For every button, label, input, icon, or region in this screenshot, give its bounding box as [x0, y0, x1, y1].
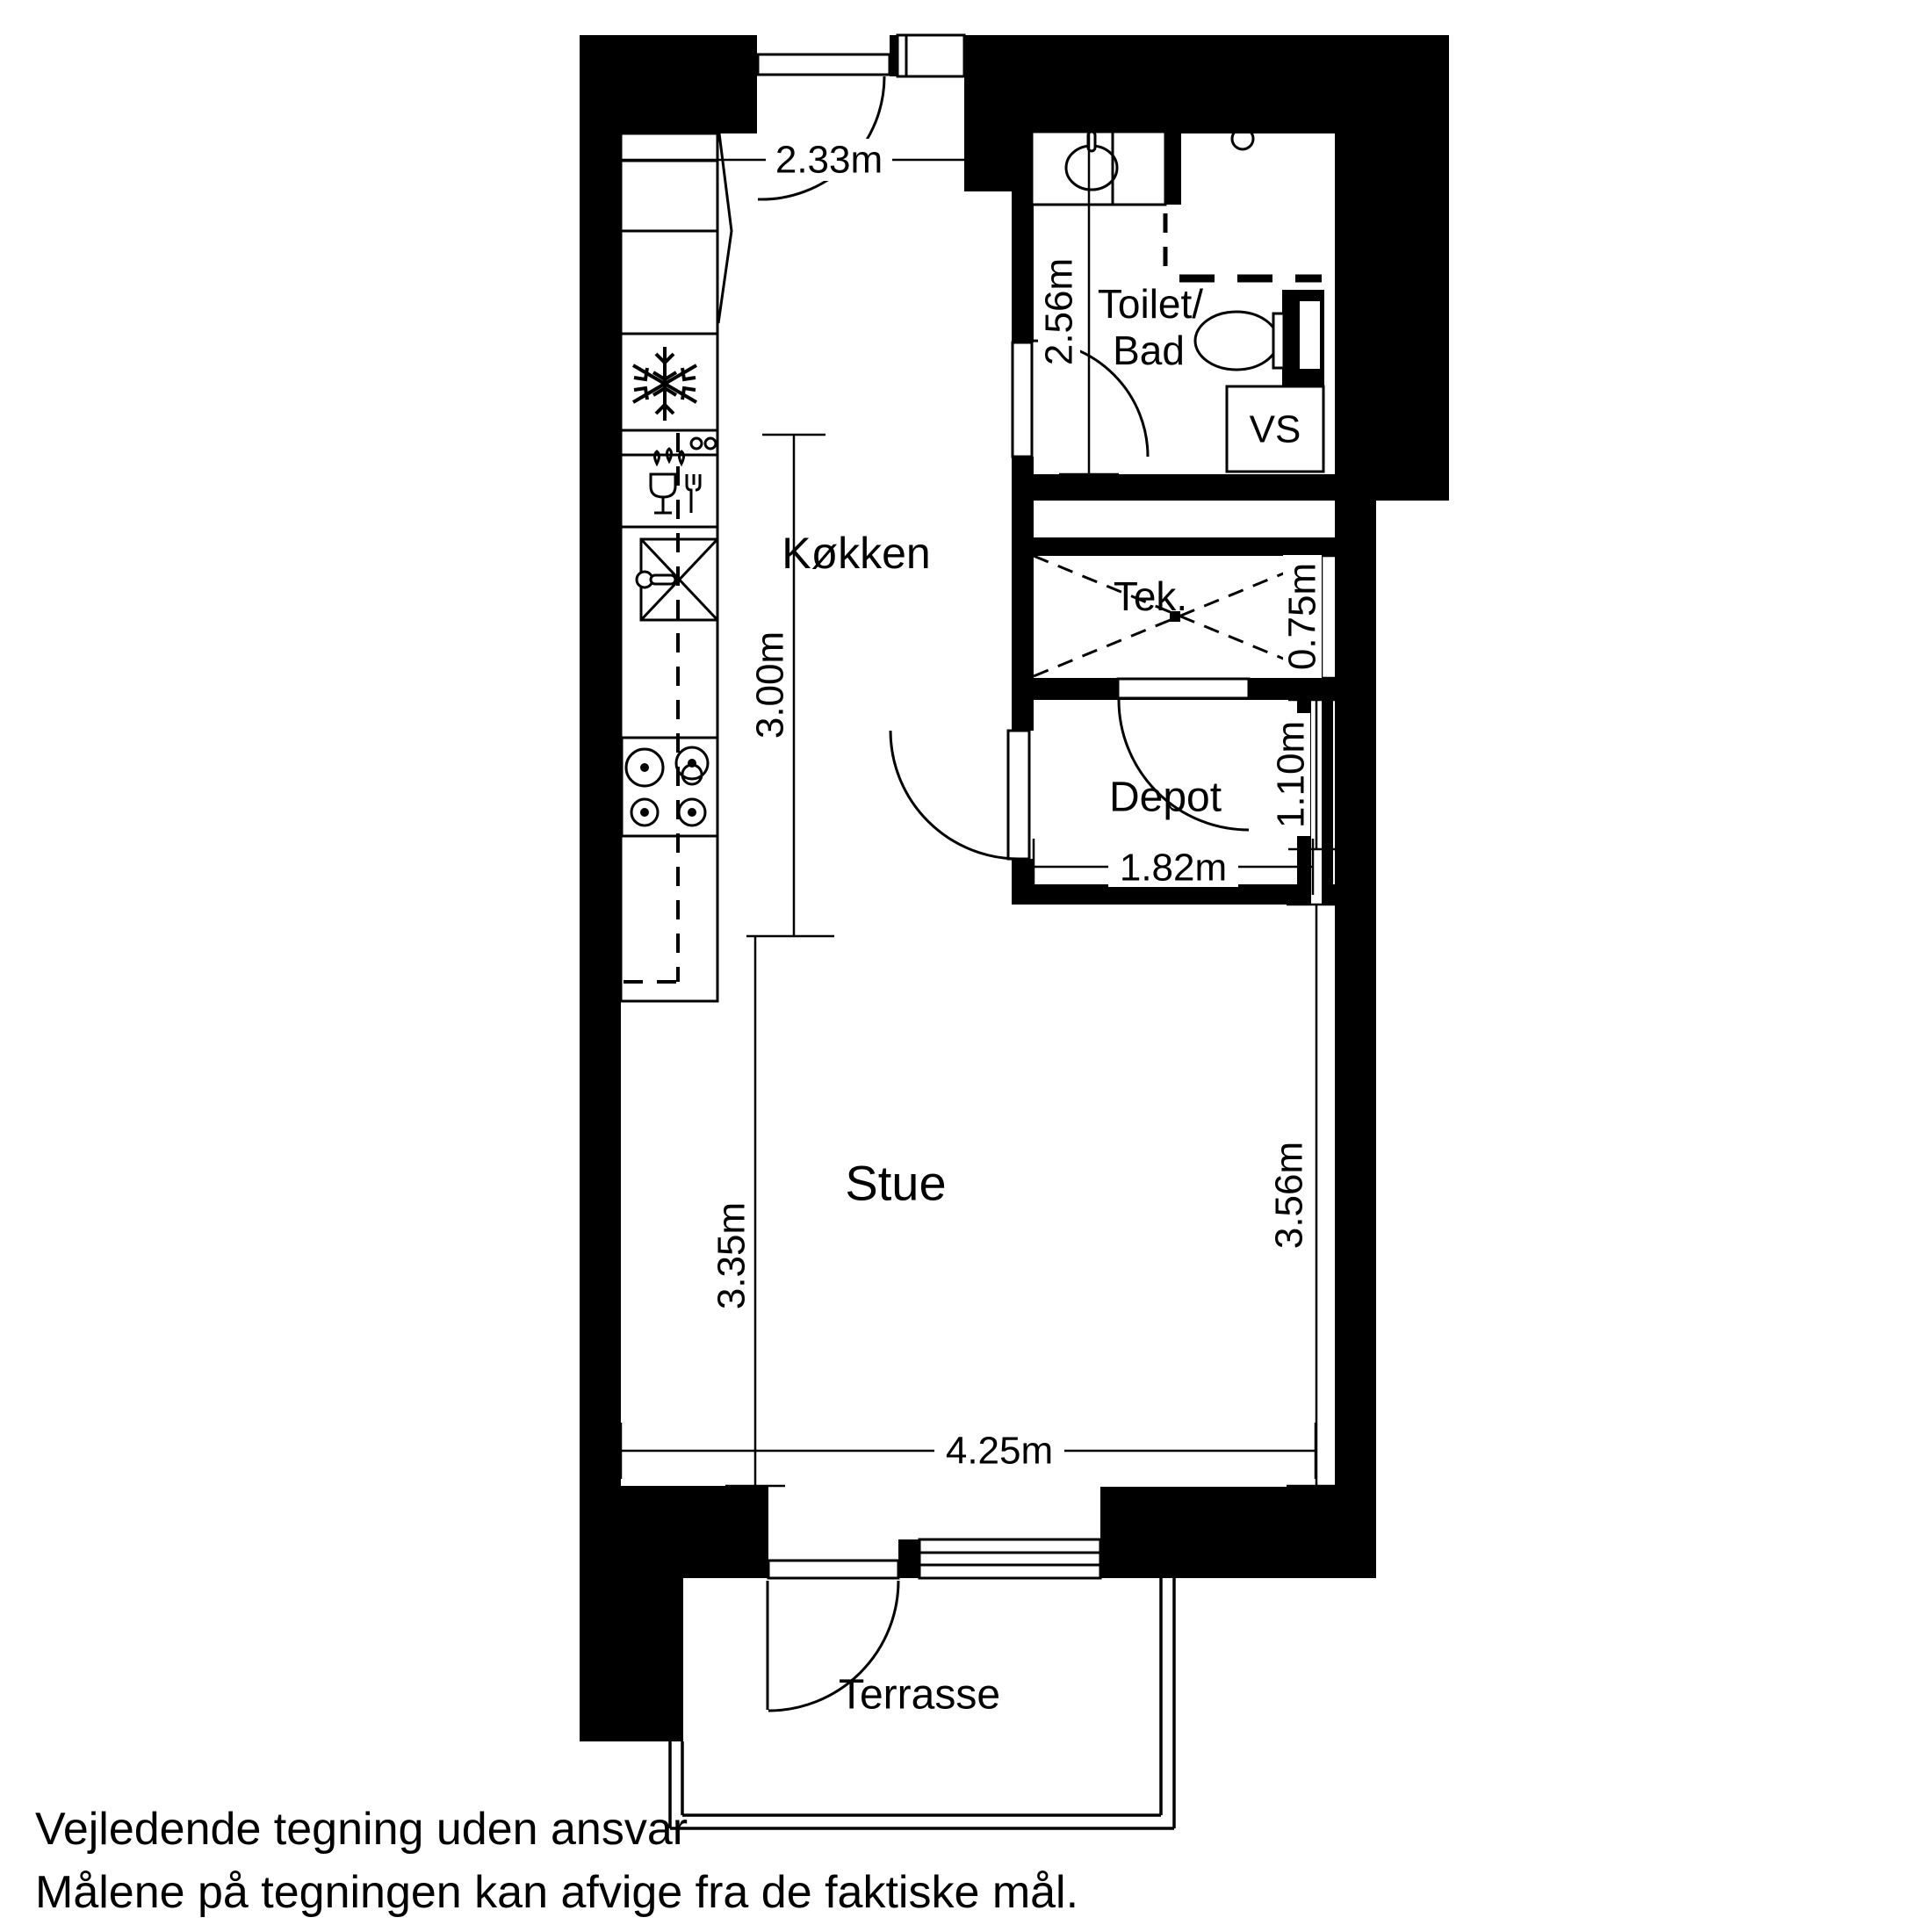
- footer-disclaimer: Vejledende tegning uden ansvar Målene på…: [35, 1804, 1078, 1918]
- terrace-label: Terrasse: [839, 1672, 1000, 1719]
- wall-top-right: [964, 35, 1449, 133]
- dim-toilet-label-group: 2.56m: [1038, 246, 1081, 378]
- washbasin-counter: [1032, 132, 1165, 205]
- living-room-window: [919, 1539, 1100, 1578]
- wall-left: [580, 35, 621, 1578]
- dim-living-left-label: 3.35m: [710, 1202, 753, 1309]
- dim-depot-width-label: 1.82m: [1120, 847, 1227, 890]
- wall-top-left-block: [580, 35, 757, 133]
- wall-terrace-stub: [580, 1578, 683, 1741]
- dim-living-left-label-group: 3.35m: [710, 1190, 753, 1322]
- kitchen-label: Køkken: [782, 529, 931, 578]
- tek-label: Tek.: [1114, 573, 1187, 619]
- wall-bottom-left: [580, 1486, 768, 1578]
- living-room-door-arc: [890, 731, 1019, 859]
- four-burner-stove-icon: [622, 738, 717, 836]
- depot-north-door-leaf: [1118, 679, 1249, 698]
- wall-right-lower: [1335, 501, 1376, 1578]
- toilet-bowl-icon: [1195, 312, 1284, 370]
- living-room-label: Stue: [845, 1156, 946, 1211]
- terrace-door-threshold: [768, 1561, 898, 1578]
- dim-hall-width-label: 2.33m: [775, 139, 883, 182]
- wall-depot-bottom-b: [1322, 884, 1376, 905]
- wall-window-post: [898, 1539, 919, 1578]
- wall-tek-top: [1012, 537, 1376, 556]
- dim-kitchen-label-group: 3.00m: [749, 619, 792, 751]
- wall-bottom-right: [1100, 1487, 1376, 1578]
- wall-hall-upper: [1012, 191, 1034, 342]
- toilet-door-leaf: [1013, 342, 1032, 457]
- dim-living-width-label: 4.25m: [946, 1430, 1053, 1473]
- kitchen-door-leaf: [718, 133, 732, 323]
- dim-toilet-label: 2.56m: [1038, 258, 1081, 365]
- dim-depot-depth-label: 1.10m: [1270, 721, 1313, 828]
- toilet-label-line2: Bad: [1113, 328, 1185, 373]
- footer-line-1: Vejledende tegning uden ansvar: [35, 1804, 688, 1855]
- vs-label: VS: [1250, 408, 1301, 451]
- burner-dot-4: [689, 810, 696, 816]
- faucet-spout: [651, 575, 675, 584]
- dim-tek-label-group: 0.75m: [1281, 555, 1324, 678]
- wall-depot-east-b: [1322, 700, 1333, 884]
- dim-living-right-label-group: 3.56m: [1268, 1129, 1311, 1261]
- wall-right-upper: [1335, 123, 1449, 501]
- wall-shower-divider: [1165, 119, 1181, 205]
- toilet-label-line1: Toilet/: [1098, 281, 1203, 327]
- dim-depot-depth-label-group: 1.10m: [1270, 713, 1313, 836]
- burner-dot-1: [642, 765, 648, 771]
- floor-plan-page: 2.33m 3.00m 3.35m 4.25m 3.56m 2.56m 0.75…: [0, 0, 1932, 1932]
- depot-label: Depot: [1109, 775, 1222, 821]
- dim-kitchen-label: 3.00m: [749, 631, 792, 739]
- burner-dot-3: [642, 810, 648, 816]
- depot-doors: [890, 679, 1249, 859]
- toilet-niche-inner: [1300, 301, 1320, 369]
- dim-tek-label: 0.75m: [1281, 563, 1324, 670]
- living-room-door-leaf: [1008, 731, 1029, 859]
- burner-dot-2: [689, 761, 696, 767]
- entrance-sidelight-window: [758, 54, 890, 75]
- floor-plan-drawing: 2.33m 3.00m 3.35m 4.25m 3.56m 2.56m 0.75…: [0, 0, 1932, 1932]
- footer-line-2: Målene på tegningen kan afvige fra de fa…: [35, 1867, 1078, 1918]
- wall-toilet-bottom: [1012, 474, 1376, 501]
- wall-entry-jamb-stub: [964, 133, 1034, 191]
- dim-living-right-label: 3.56m: [1268, 1142, 1311, 1249]
- kitchen-fixtures: [621, 133, 732, 1001]
